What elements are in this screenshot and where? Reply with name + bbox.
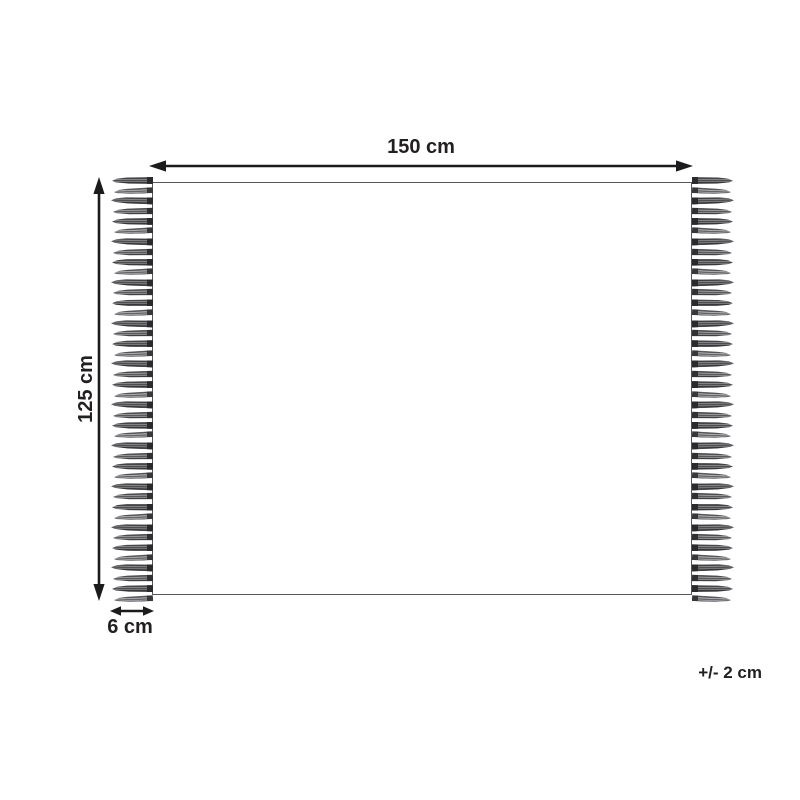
fringe-tassel [112, 299, 153, 306]
fringe-tassel [692, 432, 731, 440]
fringe-tassel [692, 513, 731, 521]
fringe-tassel [692, 309, 731, 317]
fringe-tassel [692, 207, 732, 214]
fringe-tassel [113, 330, 153, 337]
fringe-tassel [692, 237, 734, 245]
fringe-tassel [112, 422, 153, 429]
fringe-tassel [112, 463, 153, 470]
fringe-tassel [692, 554, 731, 562]
arrowhead-right [143, 606, 154, 616]
fringe-tassel [113, 452, 153, 459]
fringe-tassel [692, 442, 734, 450]
fringe-tassel [692, 482, 734, 490]
fringe-tassel [692, 319, 734, 327]
fringe-tassel [111, 319, 153, 327]
arrowhead-top [93, 177, 104, 194]
fringe-tassel [692, 575, 732, 582]
fringe-tassel [111, 564, 153, 572]
fringe-tassel [692, 248, 732, 255]
fringe-tassel [111, 482, 153, 490]
fringe-tassel [692, 381, 733, 388]
fringe-tassel [112, 259, 153, 266]
fringe-tassel [114, 268, 153, 276]
arrowhead-left [110, 606, 121, 616]
fringe-tassel [692, 371, 732, 378]
fringe-tassel [113, 411, 153, 418]
fringe-tassel [114, 595, 153, 603]
fringe-tassel [113, 493, 153, 500]
fringe-tassel [692, 268, 731, 276]
fringe-tassel [113, 248, 153, 255]
fringe-tassel [692, 452, 732, 459]
fringe-tassel [112, 544, 153, 551]
fringe-tassel [114, 472, 153, 480]
fringe-tassel [112, 177, 153, 184]
fringe-tassel [112, 340, 153, 347]
fringe-tassel [692, 463, 733, 470]
fringe-tassel [114, 187, 153, 195]
arrowhead-right [676, 160, 693, 171]
fringe-tassel [692, 218, 733, 225]
fringe-tassel [114, 391, 153, 399]
fringe-tassel [112, 585, 153, 592]
fringe-tassel [111, 197, 153, 205]
fringe-tassel [112, 504, 153, 511]
fringe-tassel [111, 278, 153, 286]
fringe-tassel [692, 360, 734, 368]
fringe-tassel [114, 513, 153, 521]
fringe-tassel [113, 207, 153, 214]
width-dimension-label: 150 cm [149, 137, 693, 157]
fringe-tassel [114, 432, 153, 440]
fringe-tassel [692, 197, 734, 205]
fringe-tassel [692, 493, 732, 500]
fringe-tassel [692, 523, 734, 531]
fringe-tassel [692, 564, 734, 572]
fringe-tassel [692, 422, 733, 429]
fringe-tassel [692, 228, 731, 236]
fringe-tassel [111, 523, 153, 531]
rug-outline [152, 182, 692, 595]
fringe-tassel [692, 595, 731, 603]
height-dimension-arrow [91, 177, 107, 601]
fringe-tassel [114, 350, 153, 358]
dimension-diagram: 150 cm 125 cm 6 cm +/- 2 cm [0, 0, 800, 800]
fringe-tassel [692, 544, 733, 551]
fringe-tassel [692, 259, 733, 266]
fringe-tassel [692, 504, 733, 511]
fringe-tassel [111, 360, 153, 368]
tolerance-note: +/- 2 cm [650, 664, 762, 681]
fringe-tassel [692, 391, 731, 399]
fringe-tassel [114, 554, 153, 562]
arrowhead-left [149, 160, 166, 171]
fringe-tassel [692, 585, 733, 592]
fringe-tassel [692, 177, 733, 184]
arrowhead-bottom [93, 584, 104, 601]
fringe-left [111, 177, 153, 602]
fringe-tassel [113, 575, 153, 582]
fringe-tassel [692, 401, 734, 409]
fringe-tassel [112, 218, 153, 225]
fringe-tassel [692, 289, 732, 296]
fringe-tassel [692, 278, 734, 286]
fringe-width-label: 6 cm [98, 617, 162, 637]
fringe-tassel [113, 371, 153, 378]
fringe-tassel [692, 350, 731, 358]
fringe-tassel [114, 228, 153, 236]
fringe-tassel [111, 442, 153, 450]
fringe-tassel [692, 330, 732, 337]
fringe-tassel [111, 237, 153, 245]
fringe-tassel [692, 534, 732, 541]
fringe-tassel [113, 534, 153, 541]
fringe-right [692, 177, 734, 602]
fringe-tassel [692, 187, 731, 195]
width-dimension-arrow [149, 158, 693, 174]
fringe-tassel [113, 289, 153, 296]
fringe-tassel [692, 299, 733, 306]
fringe-tassel [692, 411, 732, 418]
fringe-tassel [112, 381, 153, 388]
fringe-tassel [114, 309, 153, 317]
fringe-tassel [111, 401, 153, 409]
fringe-tassel [692, 472, 731, 480]
fringe-tassel [692, 340, 733, 347]
